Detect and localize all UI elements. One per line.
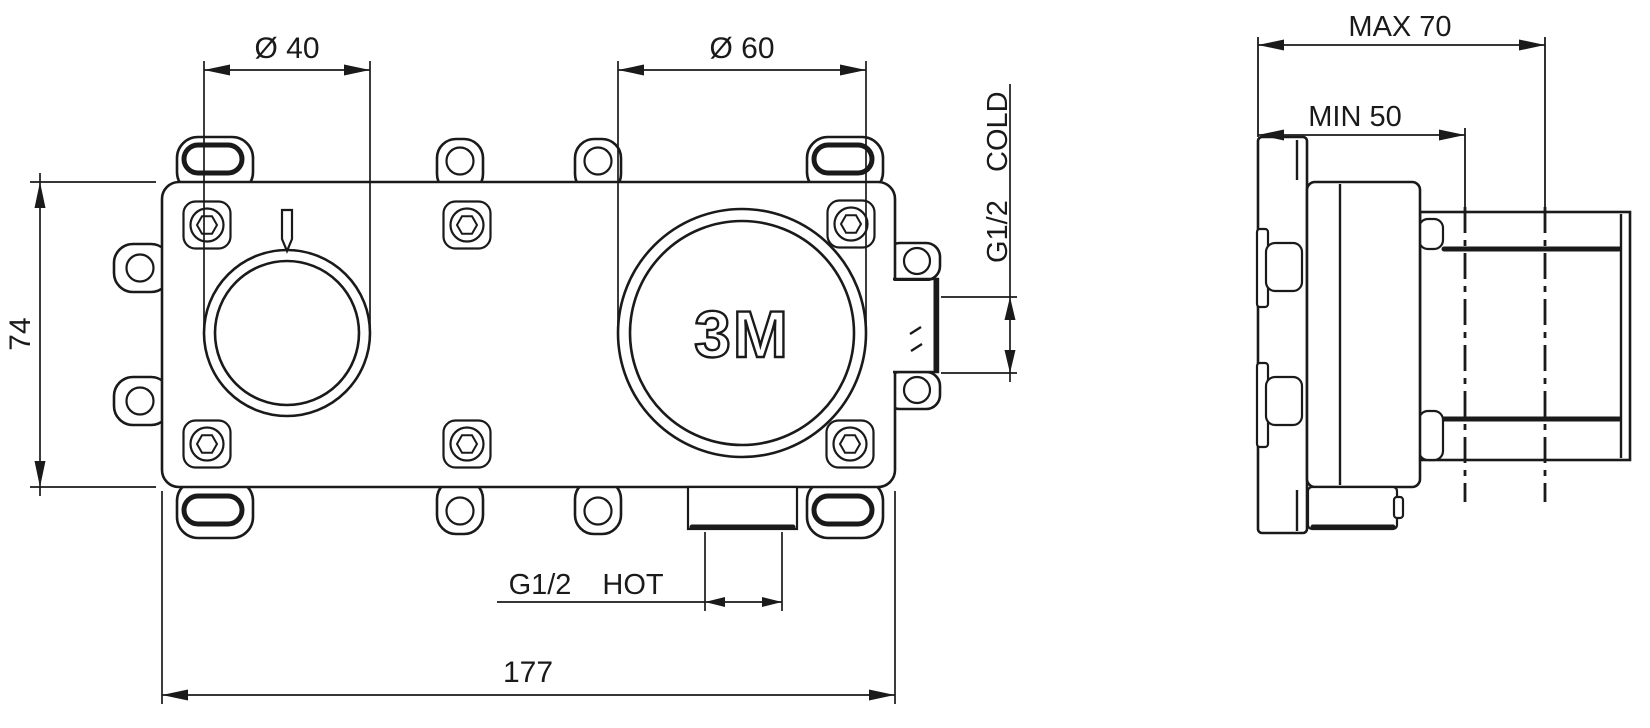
dim-cold-inlet: G1/2 COLD bbox=[941, 84, 1017, 382]
hole-bottom-mid-1 bbox=[447, 498, 474, 525]
block-outline bbox=[1307, 182, 1420, 487]
hot-port-outline bbox=[688, 487, 797, 529]
cold-port-fill bbox=[890, 281, 936, 371]
hole-right-2 bbox=[904, 377, 930, 403]
dim-max-70: MAX 70 bbox=[1258, 11, 1545, 51]
body-block bbox=[1307, 182, 1420, 529]
screw-bottom-left bbox=[184, 421, 231, 468]
cold-thread-label: G1/2 bbox=[982, 200, 1014, 263]
screw-bottom-mid bbox=[444, 421, 491, 468]
side-tab-boss-2 bbox=[1266, 377, 1302, 425]
arrow-icon bbox=[762, 597, 782, 607]
front-view: 3M bbox=[4, 32, 1017, 704]
hole-left-2 bbox=[127, 388, 154, 415]
hot-thread-label: G1/2 bbox=[509, 569, 572, 601]
arrow-icon bbox=[35, 461, 46, 487]
dim-label-min50: MIN 50 bbox=[1308, 101, 1401, 133]
hole-left-1 bbox=[127, 255, 154, 282]
brand-logo-text: 3M bbox=[694, 297, 790, 371]
cold-label: COLD bbox=[982, 91, 1014, 172]
technical-drawing-canvas: 3M bbox=[0, 0, 1650, 728]
dim-hot-inlet: G1/2 HOT bbox=[497, 532, 782, 611]
plate-outline bbox=[1258, 137, 1307, 533]
dim-min-50: MIN 50 bbox=[1258, 101, 1465, 141]
side-view: MAX 70 MIN 50 bbox=[1257, 11, 1630, 533]
hot-port bbox=[688, 487, 797, 529]
barrel-step-top bbox=[1419, 219, 1443, 249]
bottom-port-side bbox=[1308, 487, 1397, 529]
hole-right-1 bbox=[904, 248, 930, 274]
dim-label-74: 74 bbox=[4, 317, 37, 350]
screw-top-left bbox=[184, 202, 231, 249]
screw-top-mid bbox=[444, 202, 491, 249]
hot-label: HOT bbox=[602, 569, 664, 601]
barrel-step-bottom bbox=[1419, 411, 1443, 460]
hole-bottom-mid-2 bbox=[585, 498, 612, 525]
arrow-icon bbox=[1005, 297, 1016, 320]
bottom-port-step bbox=[1394, 497, 1403, 518]
screw-top-right bbox=[828, 201, 875, 248]
arrow-icon bbox=[1005, 350, 1016, 373]
valve-drawing-svg: 3M bbox=[0, 0, 1650, 728]
hole-top-mid-1 bbox=[447, 148, 474, 175]
arrow-icon bbox=[162, 690, 188, 701]
arrow-icon bbox=[840, 65, 866, 76]
arrow-icon bbox=[705, 597, 725, 607]
small-circle-inner bbox=[215, 261, 359, 405]
cold-port bbox=[890, 279, 938, 372]
cartridge-barrel bbox=[1419, 212, 1630, 460]
arrow-icon bbox=[204, 65, 230, 76]
arrow-icon bbox=[1258, 40, 1284, 51]
dim-label-40: Ø 40 bbox=[254, 32, 319, 65]
arrow-icon bbox=[618, 65, 644, 76]
arrow-icon bbox=[35, 182, 46, 208]
arrow-icon bbox=[1439, 130, 1465, 141]
screw-bottom-right bbox=[827, 421, 874, 468]
hole-top-mid-2 bbox=[585, 148, 612, 175]
arrow-icon bbox=[869, 690, 895, 701]
dim-label-177: 177 bbox=[503, 656, 553, 689]
dim-label-60: Ø 60 bbox=[709, 32, 774, 65]
dim-label-max70: MAX 70 bbox=[1348, 11, 1451, 43]
arrow-icon bbox=[1519, 40, 1545, 51]
arrow-icon bbox=[344, 65, 370, 76]
index-notch bbox=[282, 210, 292, 251]
mounting-plate bbox=[1257, 137, 1307, 533]
dim-height-74: 74 bbox=[4, 173, 156, 496]
side-tab-boss-1 bbox=[1266, 243, 1302, 291]
cartridge-opening-large: 3M bbox=[618, 209, 866, 457]
